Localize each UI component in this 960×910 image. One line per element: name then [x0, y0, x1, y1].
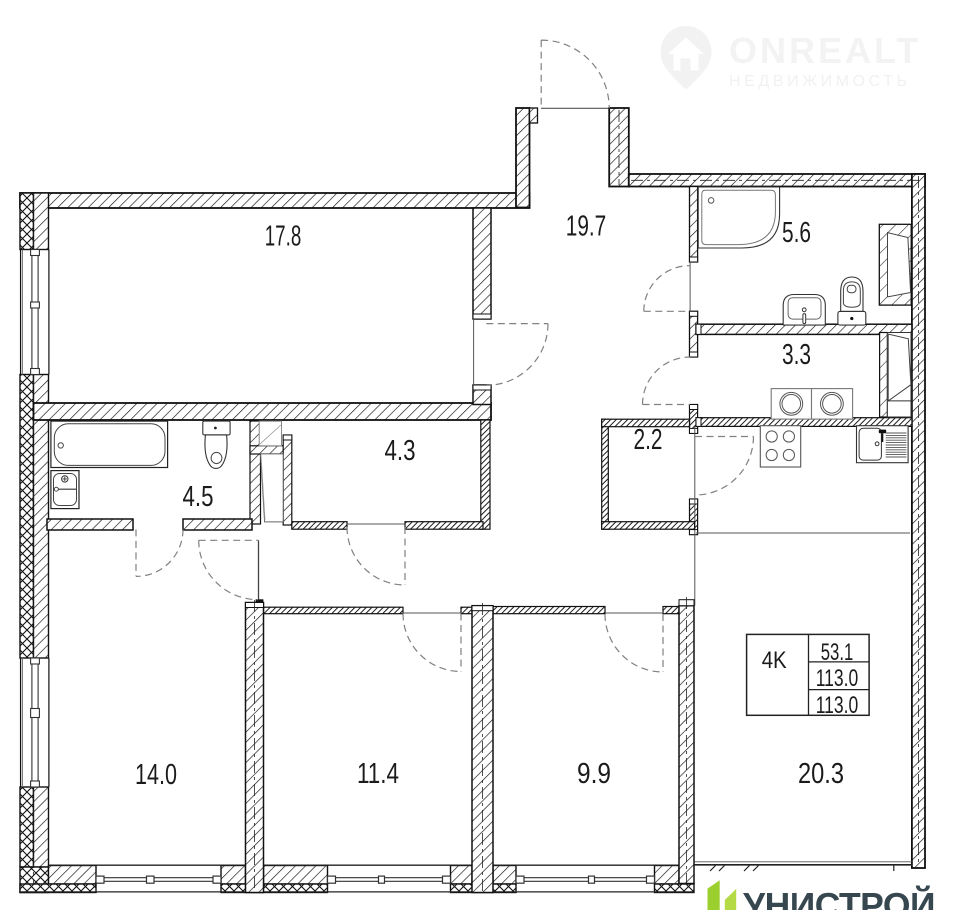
svg-text:11.4: 11.4 [357, 758, 399, 790]
svg-text:4K: 4K [762, 647, 788, 674]
svg-text:53.1: 53.1 [821, 639, 854, 666]
svg-text:УНИСТРОЙ: УНИСТРОЙ [743, 886, 935, 910]
svg-text:14.0: 14.0 [135, 759, 177, 791]
svg-text:17.8: 17.8 [265, 221, 302, 253]
svg-text:НЕДВИЖИМОСТЬ: НЕДВИЖИМОСТЬ [729, 73, 911, 90]
svg-text:113.0: 113.0 [816, 692, 859, 719]
svg-text:5.6: 5.6 [782, 217, 811, 249]
svg-text:4.3: 4.3 [385, 435, 416, 467]
svg-text:9.9: 9.9 [577, 758, 611, 790]
svg-text:113.0: 113.0 [816, 665, 859, 692]
svg-text:20.3: 20.3 [798, 758, 844, 790]
svg-text:2.2: 2.2 [634, 424, 663, 456]
svg-text:ONREALT: ONREALT [729, 30, 921, 71]
svg-text:3.3: 3.3 [782, 339, 811, 371]
svg-text:4.5: 4.5 [183, 481, 214, 513]
svg-text:19.7: 19.7 [566, 211, 607, 243]
